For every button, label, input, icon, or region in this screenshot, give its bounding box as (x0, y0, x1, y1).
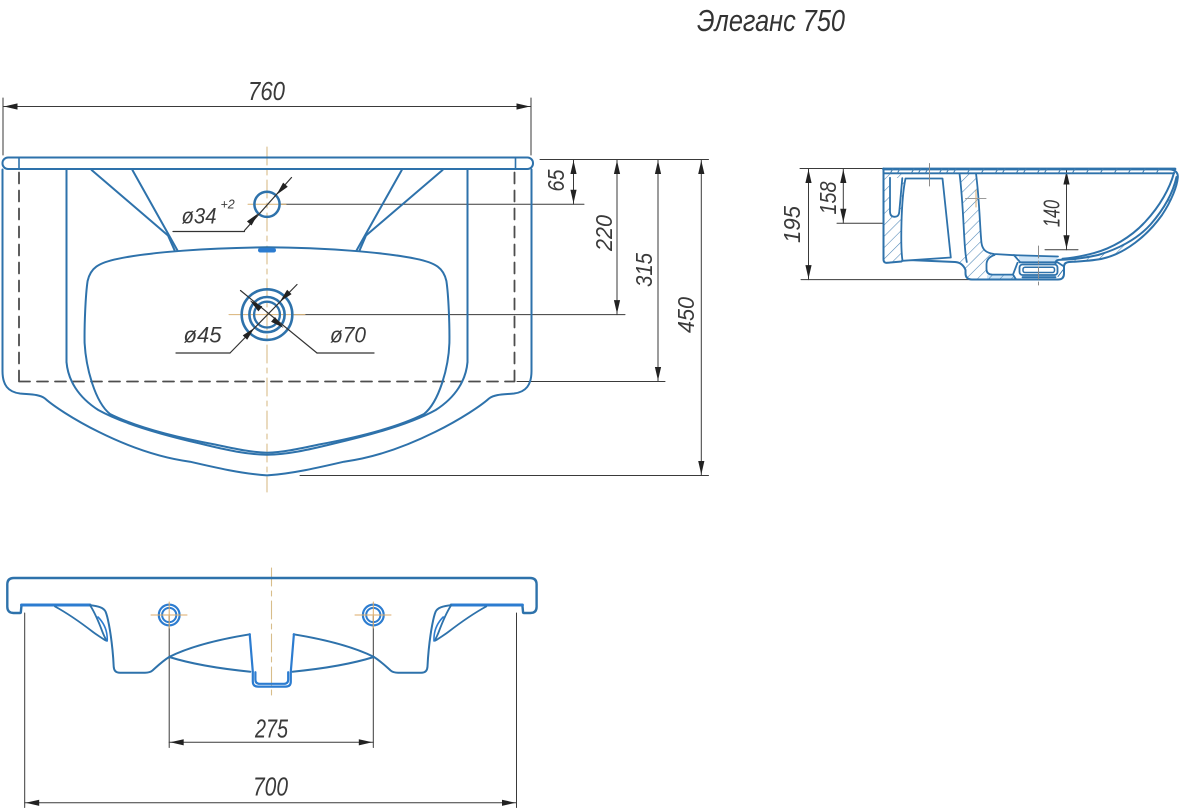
svg-text:275: 275 (254, 714, 288, 744)
svg-text:315: 315 (631, 253, 657, 287)
svg-text:760: 760 (248, 76, 285, 106)
svg-text:700: 700 (253, 772, 288, 802)
svg-text:+2: +2 (221, 198, 235, 212)
svg-text:140: 140 (1039, 200, 1065, 227)
svg-text:ø70: ø70 (330, 323, 366, 348)
svg-text:195: 195 (779, 206, 805, 243)
svg-text:Элеганс 750: Элеганс 750 (697, 3, 845, 38)
svg-text:ø34: ø34 (182, 204, 217, 229)
svg-text:158: 158 (815, 181, 841, 214)
svg-text:65: 65 (543, 169, 569, 191)
svg-text:ø45: ø45 (184, 323, 222, 348)
svg-text:450: 450 (673, 297, 699, 333)
svg-text:220: 220 (591, 215, 617, 252)
